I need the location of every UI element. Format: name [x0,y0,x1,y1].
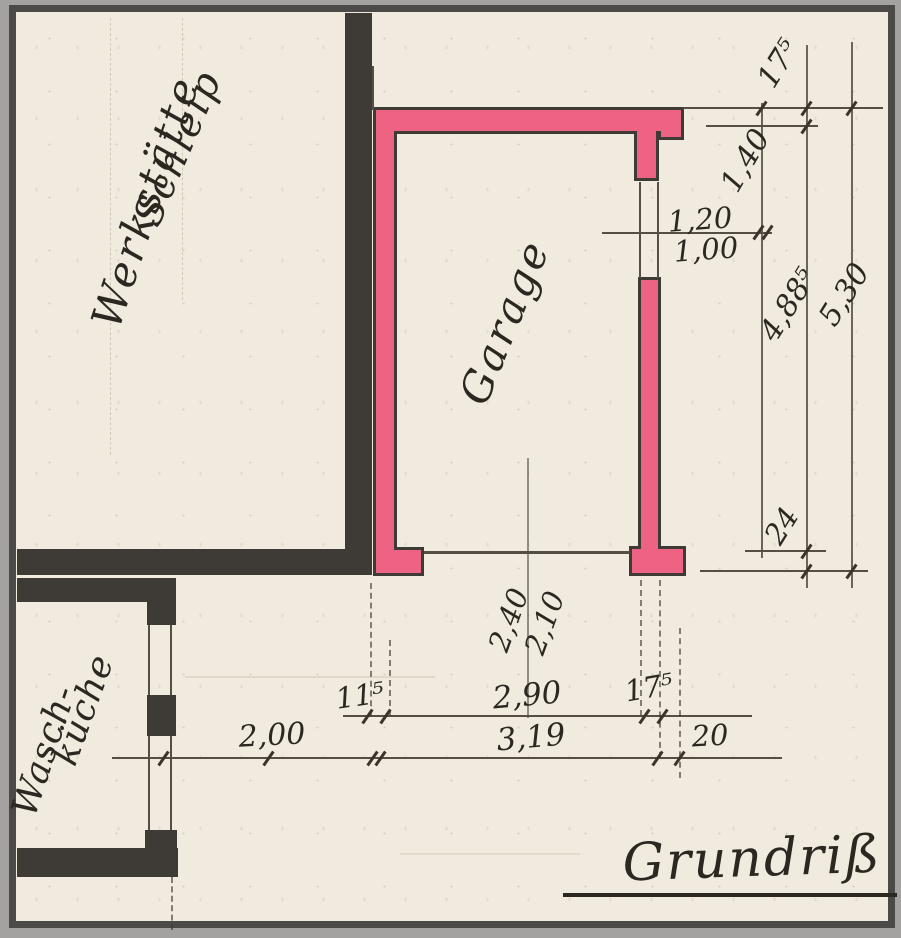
faint-guide-line [185,676,435,678]
construction-line [389,640,391,716]
wall-laundry-top [17,578,157,602]
garage-wall-right-pier [637,112,656,178]
drawing-title: Grundriß [622,828,883,889]
garage-wall-right-foot [632,549,683,573]
dim-label-wall-right: 17⁵ [623,670,676,707]
laundry-window-jamb [148,625,150,695]
wall-laundry-bottom [17,848,178,877]
wall-laundry-pier-mid [147,695,176,736]
dim-label-window-inner: 1,00 [673,233,739,266]
laundry-window-jamb [170,736,172,830]
dim-label-total-width: 3,19 [495,720,566,757]
faint-smudge [400,853,580,855]
dim-label-offset-right: 20 [691,721,729,752]
dimension-line-bottom-upper [343,715,752,717]
title-underline [563,893,897,897]
dim-label-wall-left: 11⁵ [334,678,386,713]
dim-label-door-width: 2,90 [491,678,562,715]
floor-plan-scan: Werkstätte Schleip Garage Wasch- küche 1… [0,0,901,938]
wall-party-horizontal [17,549,372,575]
wall-laundry-pier-top [147,578,176,625]
laundry-axis-line [171,877,173,930]
wall-edge-extension [372,66,374,110]
garage-window-jamb [657,182,659,278]
garage-wall-left [376,110,394,573]
garage-wall-left-foot [376,550,421,573]
dim-label-offset-left: 2,00 [238,719,306,752]
extension-line-bottom-outer [700,570,868,572]
garage-wall-top-step [661,110,681,137]
wall-workshop-vertical [345,13,372,575]
garage-wall-top [376,110,681,131]
laundry-window-jamb [170,625,172,695]
laundry-window-jamb [148,736,150,830]
garage-window-jamb [639,182,641,278]
garage-wall-right [641,280,658,552]
